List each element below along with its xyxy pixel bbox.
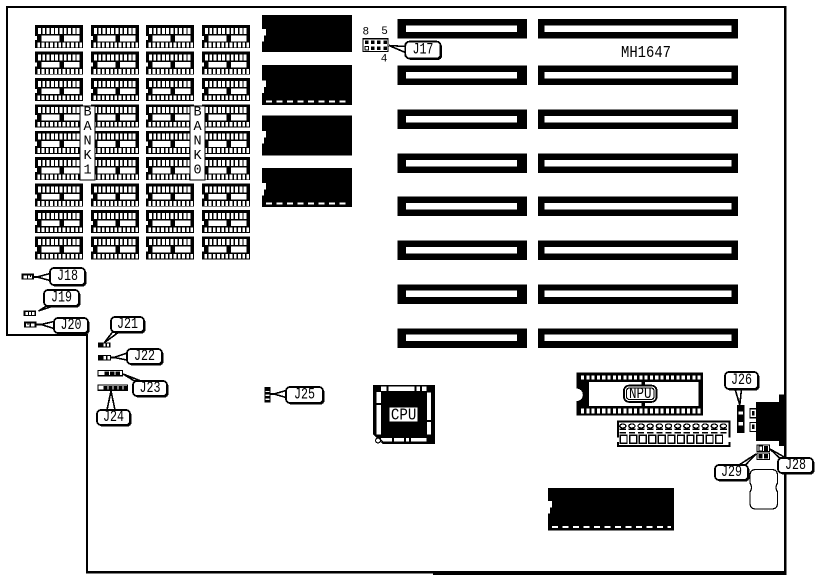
svg-text:4: 4	[381, 54, 388, 66]
svg-text:B: B	[193, 106, 201, 121]
svg-text:J23: J23	[140, 379, 161, 397]
svg-text:K: K	[83, 149, 92, 164]
svg-text:J29: J29	[721, 463, 742, 481]
svg-text:J20: J20	[61, 316, 82, 334]
svg-text:J28: J28	[785, 456, 806, 474]
svg-text:0: 0	[193, 164, 201, 179]
svg-text:J21: J21	[117, 315, 138, 333]
svg-text:J26: J26	[731, 371, 752, 389]
svg-text:CPU: CPU	[391, 406, 417, 425]
svg-text:J25: J25	[294, 385, 315, 403]
svg-text:NPU: NPU	[629, 385, 652, 403]
svg-text:K: K	[193, 149, 202, 164]
svg-text:J18: J18	[57, 267, 78, 285]
svg-text:1: 1	[83, 164, 91, 179]
svg-text:J19: J19	[51, 288, 72, 306]
svg-text:N: N	[83, 135, 91, 150]
svg-text:J24: J24	[103, 408, 124, 426]
svg-text:N: N	[193, 135, 201, 150]
svg-text:MH1647: MH1647	[621, 44, 671, 63]
svg-text:J22: J22	[134, 347, 155, 365]
svg-text:A: A	[193, 120, 202, 135]
svg-text:A: A	[83, 120, 92, 135]
svg-text:B: B	[83, 106, 91, 121]
svg-text:5: 5	[381, 26, 388, 38]
svg-text:8: 8	[362, 27, 369, 39]
svg-text:J17: J17	[412, 40, 433, 58]
